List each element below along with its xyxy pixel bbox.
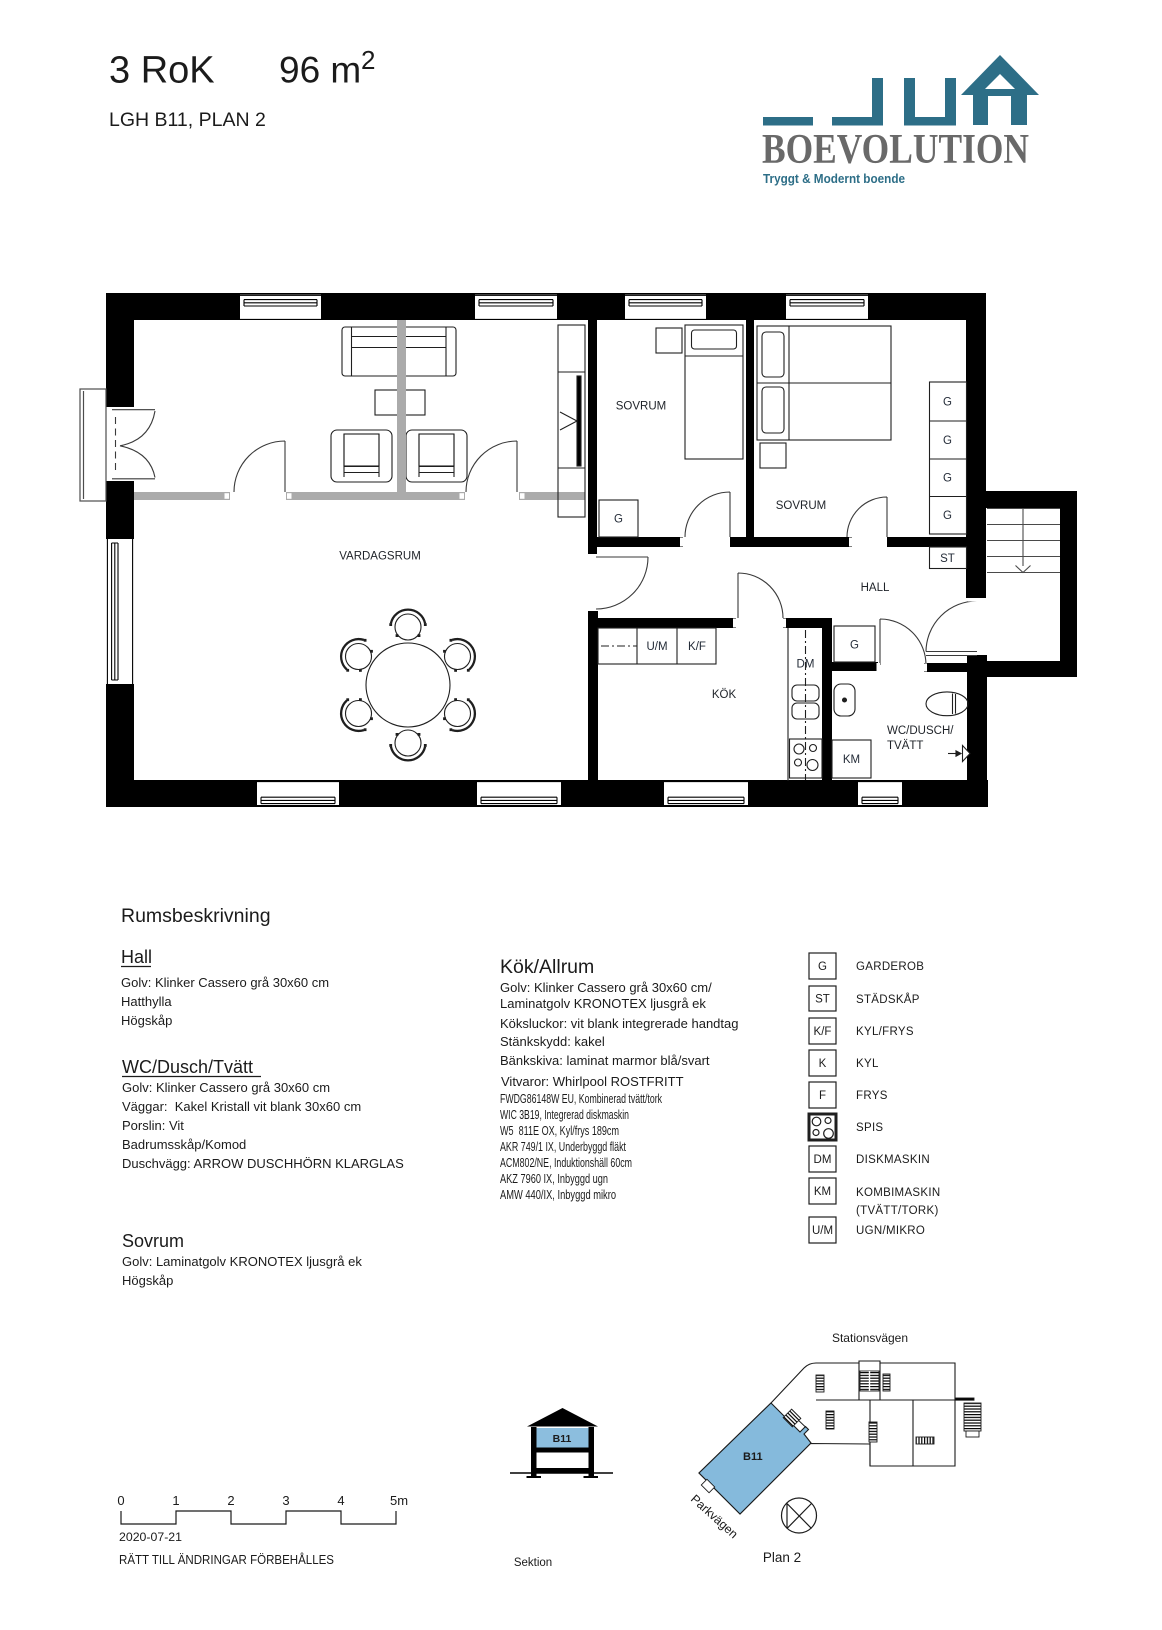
svg-text:WIC 3B19, Integrerad diskmaski: WIC 3B19, Integrerad diskmaskin (500, 1107, 629, 1122)
svg-text:Köksluckor: vit blank integrer: Köksluckor: vit blank integrerade handta… (500, 1016, 738, 1031)
svg-text:G: G (943, 510, 952, 522)
svg-text:G: G (850, 640, 859, 652)
svg-text:K: K (819, 1058, 827, 1070)
svg-text:Vitvaror: Whirlpool ROSTFRITT: Vitvaror: Whirlpool ROSTFRITT (501, 1074, 684, 1089)
svg-text:Rumsbeskrivning: Rumsbeskrivning (121, 905, 271, 927)
svg-text:F: F (819, 1090, 826, 1102)
svg-text:KYL/FRYS: KYL/FRYS (856, 1026, 914, 1038)
svg-text:RÄTT TILL ÄNDRINGAR FÖRBEHÅLLE: RÄTT TILL ÄNDRINGAR FÖRBEHÅLLES (119, 1552, 334, 1567)
svg-text:SOVRUM: SOVRUM (776, 500, 826, 512)
svg-text:Tryggt & Modernt boende: Tryggt & Modernt boende (763, 172, 905, 186)
svg-text:Hall: Hall (121, 947, 152, 967)
svg-text:Laminatgolv KRONOTEX ljusgrå e: Laminatgolv KRONOTEX ljusgrå ek (500, 996, 706, 1011)
svg-text:2: 2 (361, 45, 375, 75)
svg-text:Golv: Klinker Cassero grå 30x6: Golv: Klinker Cassero grå 30x60 cm (122, 1080, 330, 1095)
svg-text:Golv: Laminatgolv KRONOTEX lju: Golv: Laminatgolv KRONOTEX ljusgrå ek (122, 1254, 362, 1269)
svg-text:TVÄTT: TVÄTT (887, 740, 923, 752)
svg-text:SPIS: SPIS (856, 1122, 883, 1134)
svg-text:4: 4 (337, 1493, 344, 1508)
svg-text:G: G (614, 514, 623, 526)
svg-text:ACM802/NE, Induktionshäll 60cm: ACM802/NE, Induktionshäll 60cm (500, 1155, 632, 1170)
svg-text:(TVÄTT/TORK): (TVÄTT/TORK) (856, 1205, 939, 1217)
svg-text:WC/DUSCH/: WC/DUSCH/ (887, 725, 954, 737)
svg-text:W5 811E OX, Kyl/frys 189cm: W5 811E OX, Kyl/frys 189cm (500, 1123, 619, 1138)
svg-text:G: G (943, 473, 952, 485)
svg-text:AMW 440/IX, Inbyggd mikro: AMW 440/IX, Inbyggd mikro (500, 1187, 616, 1202)
svg-text:FWDG86148W EU, Kombinerad tvät: FWDG86148W EU, Kombinerad tvätt/tork (500, 1091, 662, 1106)
svg-text:SOVRUM: SOVRUM (616, 401, 666, 413)
svg-text:ST: ST (815, 994, 830, 1006)
svg-text:Porslin: Vit: Porslin: Vit (122, 1118, 184, 1133)
svg-text:Hatthylla: Hatthylla (121, 994, 172, 1009)
svg-text:Stationsvägen: Stationsvägen (832, 1331, 908, 1345)
svg-text:G: G (818, 961, 827, 973)
svg-text:Plan 2: Plan 2 (763, 1550, 801, 1565)
svg-text:KOMBIMASKIN: KOMBIMASKIN (856, 1187, 940, 1199)
svg-text:HALL: HALL (861, 582, 890, 594)
svg-text:UGN/MIKRO: UGN/MIKRO (856, 1225, 925, 1237)
svg-text:AKR 749/1 IX, Underbyggd fläkt: AKR 749/1 IX, Underbyggd fläkt (500, 1139, 626, 1154)
svg-text:Golv: Klinker Cassero grå 30x6: Golv: Klinker Cassero grå 30x60 cm (121, 975, 329, 990)
svg-text:ST: ST (940, 553, 955, 565)
svg-text:96 m: 96 m (279, 50, 361, 91)
svg-text:FRYS: FRYS (856, 1090, 888, 1102)
svg-text:LGH B11, PLAN 2: LGH B11, PLAN 2 (109, 109, 266, 131)
svg-text:Sektion: Sektion (514, 1557, 552, 1569)
svg-text:2020-07-21: 2020-07-21 (119, 1530, 182, 1544)
svg-text:3 RoK: 3 RoK (109, 50, 215, 92)
svg-text:0: 0 (117, 1493, 124, 1508)
svg-text:Badrumsskåp/Komod: Badrumsskåp/Komod (122, 1137, 246, 1152)
svg-text:DISKMASKIN: DISKMASKIN (856, 1154, 930, 1166)
svg-text:K/F: K/F (814, 1026, 832, 1038)
svg-text:Duschvägg: ARROW DUSCHHÖRN KLA: Duschvägg: ARROW DUSCHHÖRN KLARGLAS (122, 1156, 404, 1171)
svg-text:5m: 5m (390, 1493, 408, 1508)
svg-text:Kök/Allrum: Kök/Allrum (500, 956, 594, 978)
svg-text:DM: DM (797, 659, 815, 671)
svg-text:3: 3 (282, 1493, 289, 1508)
svg-text:K/F: K/F (688, 641, 706, 653)
svg-text:GARDEROB: GARDEROB (856, 961, 924, 973)
svg-text:Högskåp: Högskåp (121, 1013, 172, 1028)
svg-text:WC/Dusch/Tvätt: WC/Dusch/Tvätt (122, 1057, 253, 1077)
svg-text:G: G (943, 397, 952, 409)
svg-text:Golv: Klinker Cassero grå 30x6: Golv: Klinker Cassero grå 30x60 cm/ (500, 980, 712, 995)
svg-text:G: G (943, 435, 952, 447)
svg-text:AKZ 7960 IX, Inbyggd ugn: AKZ 7960 IX, Inbyggd ugn (500, 1171, 608, 1186)
svg-text:Väggar: Kakel Kristall vit bl: Väggar: Kakel Kristall vit blank 30x60 c… (122, 1099, 361, 1114)
svg-text:Stänkskydd: kakel: Stänkskydd: kakel (500, 1034, 605, 1049)
svg-text:STÄDSKÅP: STÄDSKÅP (856, 993, 920, 1006)
svg-text:KÖK: KÖK (712, 689, 737, 701)
svg-text:KM: KM (843, 754, 860, 766)
svg-text:DM: DM (814, 1154, 832, 1166)
svg-text:B11: B11 (743, 1451, 763, 1463)
svg-text:B11: B11 (553, 1433, 572, 1445)
svg-text:KYL: KYL (856, 1058, 879, 1070)
svg-text:U/M: U/M (646, 641, 667, 653)
svg-text:Bänkskiva: laminat marmor blå/: Bänkskiva: laminat marmor blå/svart (500, 1053, 710, 1068)
svg-text:KM: KM (814, 1186, 831, 1198)
svg-text:Högskåp: Högskåp (122, 1273, 173, 1288)
svg-text:Sovrum: Sovrum (122, 1231, 184, 1251)
svg-text:2: 2 (227, 1493, 234, 1508)
svg-text:U/M: U/M (812, 1225, 833, 1237)
svg-text:1: 1 (172, 1493, 179, 1508)
svg-text:VARDAGSRUM: VARDAGSRUM (339, 551, 421, 563)
svg-text:BOEVOLUTION: BOEVOLUTION (762, 127, 1029, 173)
